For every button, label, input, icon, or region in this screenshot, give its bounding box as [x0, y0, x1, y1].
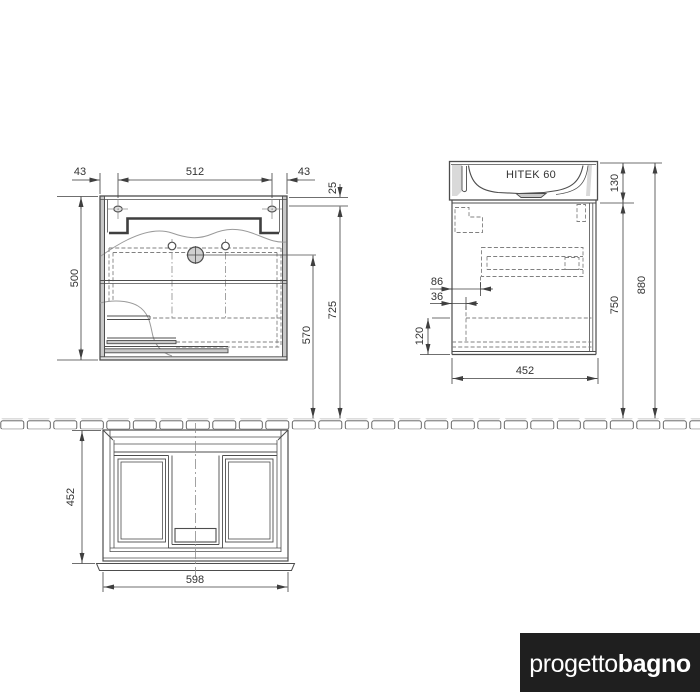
dim-label-570: 570	[301, 326, 313, 344]
logo-text-light: progetto	[529, 650, 618, 678]
dim-label-500: 500	[69, 269, 81, 287]
plan-view	[97, 423, 295, 577]
dim-label-25: 25	[327, 182, 339, 194]
dim-label-120: 120	[414, 327, 426, 345]
plan-view-dim-labels: 452 598	[65, 488, 204, 586]
dim-label-512: 512	[186, 166, 204, 178]
front-elevation-view	[100, 196, 316, 360]
dim-label-130: 130	[609, 174, 621, 192]
wall-hatch	[0, 419, 700, 429]
side-view-dimensions	[420, 163, 662, 418]
dim-label-452-side: 452	[516, 365, 534, 377]
technical-drawing-page: 43 512 43 25 500 725 570	[0, 0, 700, 700]
brand-logo: progettobagno	[520, 633, 700, 692]
dim-label-725: 725	[327, 301, 339, 319]
side-view-dim-labels: 130 750 880 86 36 120 452	[414, 174, 648, 377]
logo-text: progettobagno	[529, 650, 691, 678]
dim-label-86: 86	[431, 276, 443, 288]
dim-label-36: 36	[431, 291, 443, 303]
dim-label-452-plan: 452	[65, 488, 77, 506]
model-label: HITEK 60	[506, 169, 556, 181]
dim-label-43-left: 43	[74, 166, 86, 178]
dim-label-598: 598	[186, 574, 204, 586]
logo-text-bold: bagno	[618, 650, 691, 678]
side-section-view: HITEK 60	[450, 162, 598, 355]
vanity-dimension-drawing: 43 512 43 25 500 725 570	[0, 0, 700, 700]
dim-label-43-right: 43	[298, 166, 310, 178]
plan-view-dimensions	[72, 431, 288, 593]
dim-label-880: 880	[636, 276, 648, 294]
dim-label-750: 750	[609, 296, 621, 314]
